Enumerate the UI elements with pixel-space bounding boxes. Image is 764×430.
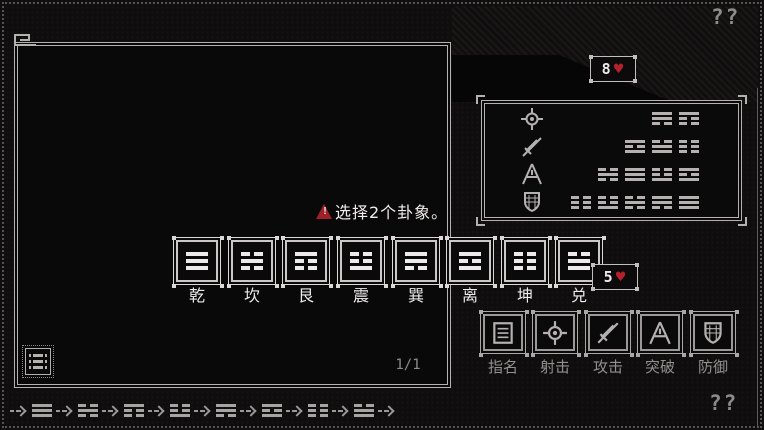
trigram-button-label: 坤 (501, 287, 549, 305)
trigram-glyph (216, 404, 236, 417)
trigram-button-wrap: 乾 (173, 237, 221, 285)
trigram-glyph (262, 404, 282, 417)
heart-icon: ♥ (615, 271, 627, 284)
deck-icon-button[interactable] (22, 345, 54, 378)
combo-trigram-group (652, 112, 699, 125)
trigram-glyph (652, 112, 672, 125)
arrow-right-icon (148, 406, 166, 415)
trigram-sequence-bar (10, 401, 396, 419)
combo-row (486, 135, 737, 159)
trigram-button-7[interactable] (501, 237, 549, 285)
trigram-button-label: 艮 (282, 287, 330, 305)
trigram-button-1[interactable] (173, 237, 221, 285)
arrow-right-icon (10, 406, 28, 415)
trigram-button-4[interactable] (337, 237, 385, 285)
trigram-glyph (652, 196, 672, 209)
action-button-wrap: 突破 (637, 311, 683, 354)
combo-trigram-group (625, 140, 699, 153)
trigram-glyph (679, 196, 699, 209)
action-button-label: 射击 (532, 356, 578, 377)
enemy-health-value: 8 (602, 60, 611, 78)
trigram-button-label: 震 (337, 287, 385, 305)
action-button-label: 突破 (637, 356, 683, 377)
trigram-glyph (652, 140, 672, 153)
mystery-mark-top-right: ?? (711, 5, 740, 29)
trigram-button-wrap: 坎 (228, 237, 276, 285)
trigram-button-wrap: 离 (446, 237, 494, 285)
trigram-glyph (598, 196, 618, 209)
action-button-wrap: 射击 (532, 311, 578, 354)
combo-reference-panel (481, 100, 742, 221)
combo-trigram-group (598, 168, 699, 181)
heart-icon: ♥ (613, 63, 625, 76)
trigram-glyph (354, 404, 374, 417)
trigram-glyph (625, 140, 645, 153)
selection-prompt-text: 选择2个卦象。 (335, 199, 448, 223)
shield-icon (700, 320, 726, 346)
trigram-glyph (308, 404, 328, 417)
trigram-button-wrap: 坤 (501, 237, 549, 285)
corner-scroll-ornament (7, 31, 37, 57)
trigram-button-3[interactable] (282, 237, 330, 285)
combo-row (486, 190, 737, 214)
sword-icon (520, 135, 544, 159)
action-button-wrap: 防御 (690, 311, 736, 354)
trigram-button-label: 巽 (392, 287, 440, 305)
action-button-wrap: 指名 (480, 311, 526, 354)
shield-icon (520, 190, 544, 214)
corner-bracket-icon (476, 95, 485, 104)
crosshair-icon (520, 107, 544, 131)
trigram-glyph (32, 404, 52, 417)
trigram-button-wrap: 艮 (282, 237, 330, 285)
trigram-glyph (679, 112, 699, 125)
player-health-badge: 5 ♥ (592, 264, 638, 290)
name-list-icon (490, 320, 516, 346)
trigram-button-label: 乾 (173, 287, 221, 305)
warning-triangle-icon (316, 204, 332, 219)
trigram-glyph (186, 252, 208, 270)
action-button-3[interactable] (585, 311, 631, 354)
arrow-right-icon (102, 406, 120, 415)
trigram-glyph (170, 404, 190, 417)
trigram-glyph (598, 168, 618, 181)
trigram-glyph (514, 252, 536, 270)
action-button-5[interactable] (690, 311, 736, 354)
trigram-glyph (625, 196, 645, 209)
arrow-right-icon (286, 406, 304, 415)
trigram-glyph (625, 168, 645, 181)
trigram-glyph (350, 252, 372, 270)
combo-row (486, 107, 737, 131)
action-button-1[interactable] (480, 311, 526, 354)
enemy-health-badge: 8 ♥ (590, 56, 636, 82)
breakthrough-icon (520, 162, 544, 186)
action-button-wrap: 攻击 (585, 311, 631, 354)
trigram-button-label: 离 (446, 287, 494, 305)
action-button-2[interactable] (532, 311, 578, 354)
action-button-label: 指名 (480, 356, 526, 377)
trigram-glyph (679, 140, 699, 153)
sword-icon (595, 320, 621, 346)
corner-bracket-icon (738, 217, 747, 226)
selection-prompt: 选择2个卦象。 (316, 199, 448, 223)
deck-icon (25, 348, 51, 375)
trigram-glyph (679, 168, 699, 181)
trigram-button-6[interactable] (446, 237, 494, 285)
trigram-glyph (571, 196, 591, 209)
player-health-value: 5 (604, 268, 613, 286)
trigram-glyph (568, 252, 590, 270)
action-button-4[interactable] (637, 311, 683, 354)
combo-row (486, 162, 737, 186)
combo-trigram-group (571, 196, 699, 209)
trigram-button-2[interactable] (228, 237, 276, 285)
mystery-mark-bottom-right: ?? (709, 391, 738, 415)
game-screen: ?? ?? 8 ♥ 选择2个卦象。 乾坎艮震巽离坤兑 5 ♥ 指名射击攻击突破防… (0, 0, 764, 430)
corner-bracket-icon (476, 217, 485, 226)
trigram-button-5[interactable] (392, 237, 440, 285)
arrow-right-icon (56, 406, 74, 415)
trigram-glyph (78, 404, 98, 417)
arrow-right-icon (332, 406, 350, 415)
breakthrough-icon (647, 320, 673, 346)
trigram-glyph (241, 252, 263, 270)
trigram-glyph (459, 252, 481, 270)
action-button-label: 攻击 (585, 356, 631, 377)
page-indicator: 1/1 (386, 357, 430, 373)
trigram-button-wrap: 巽 (392, 237, 440, 285)
crosshair-icon (542, 320, 568, 346)
trigram-button-wrap: 震 (337, 237, 385, 285)
arrow-right-icon (194, 406, 212, 415)
trigram-glyph (405, 252, 427, 270)
corner-bracket-icon (738, 95, 747, 104)
arrow-right-icon (240, 406, 258, 415)
trigram-glyph (652, 168, 672, 181)
trigram-button-label: 坎 (228, 287, 276, 305)
arrow-right-icon (378, 406, 396, 415)
right-edge-line (757, 88, 758, 426)
action-button-label: 防御 (690, 356, 736, 377)
trigram-glyph (124, 404, 144, 417)
trigram-glyph (295, 252, 317, 270)
